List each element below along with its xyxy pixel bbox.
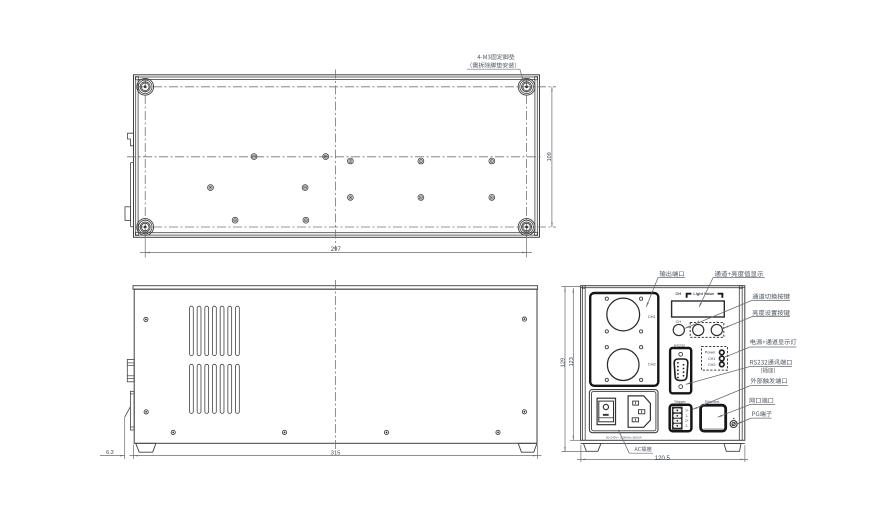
svg-text:1-: 1- <box>685 414 688 418</box>
svg-text:6.3: 6.3 <box>106 450 114 456</box>
svg-text:Power: Power <box>705 350 716 354</box>
svg-text:CH: CH <box>676 320 682 324</box>
svg-text:CH1: CH1 <box>708 357 716 361</box>
svg-text:CH2: CH2 <box>708 363 716 367</box>
svg-text:297: 297 <box>331 247 342 253</box>
svg-text:129: 129 <box>560 358 566 367</box>
svg-text:120.5: 120.5 <box>655 456 671 462</box>
svg-text:CH: CH <box>675 291 681 296</box>
svg-text:CH2: CH2 <box>648 362 657 367</box>
svg-text:90-240V~ 50/60Hz 800VA: 90-240V~ 50/60Hz 800VA <box>606 436 643 440</box>
svg-text:109: 109 <box>547 152 553 161</box>
svg-text:123: 123 <box>569 357 575 366</box>
svg-text:2-: 2- <box>685 424 688 428</box>
svg-text:CH1: CH1 <box>648 314 657 319</box>
svg-text:315: 315 <box>331 450 341 456</box>
svg-text:2+: 2+ <box>685 419 689 423</box>
svg-text:1+: 1+ <box>685 409 689 413</box>
